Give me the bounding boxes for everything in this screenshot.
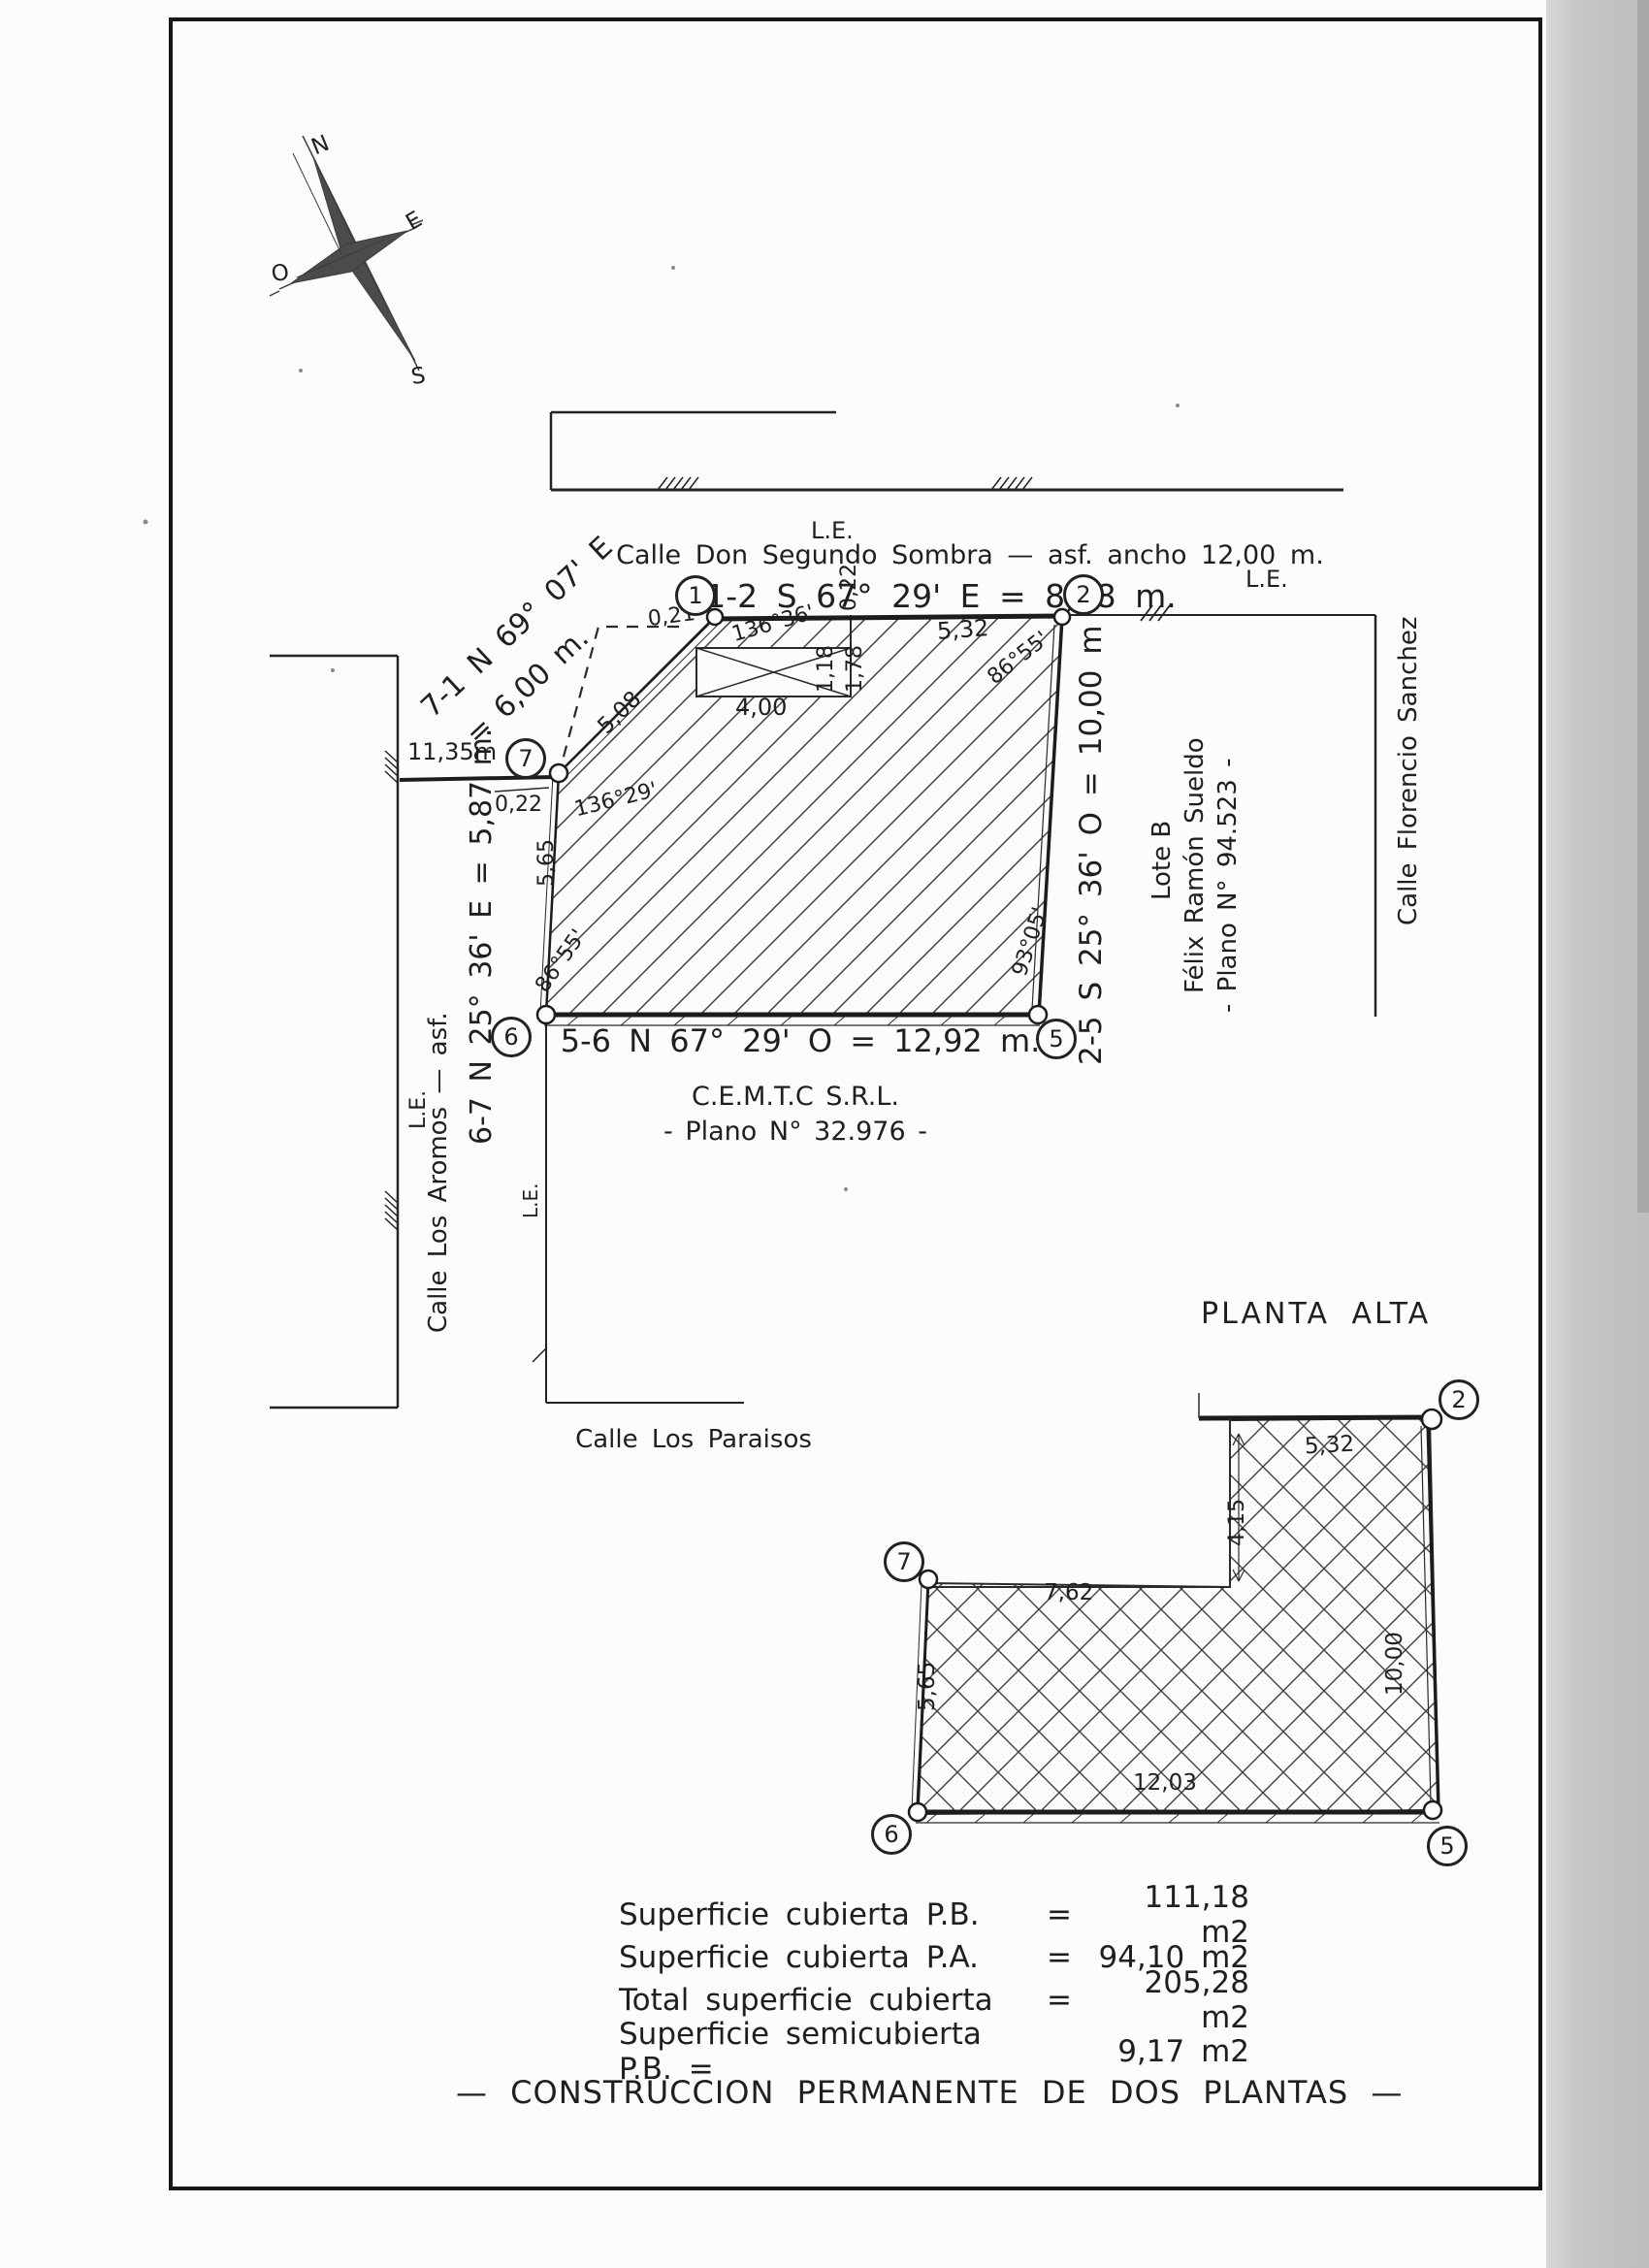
dim-0-22-top: 0,22 (838, 564, 861, 611)
area-eq: = (1028, 1940, 1090, 1975)
vertex-2-pb: 2 (1063, 574, 1104, 615)
left-street-name: Calle Los Aromos — asf. (425, 1012, 453, 1333)
area-row-semicubierta: Superficie semicubierta P.B. = 9,17 m2 (619, 2030, 1249, 2073)
vertex-5-pb-num: 5 (1049, 1025, 1063, 1053)
top-street-lines (551, 412, 1343, 490)
dim-5-32-pb: 5,32 (936, 615, 989, 644)
area-eq: = (1028, 1897, 1090, 1932)
vertex-7-pb-num: 7 (518, 745, 533, 772)
scanned-survey-plan: N E O S L.E. Calle Don Segundo Sombra — … (0, 0, 1649, 2268)
dim-10-00: 10,00 (1383, 1632, 1407, 1696)
dim-1-18: 1,18 (815, 645, 838, 693)
neighbor-owner: Félix Ramón Sueldo (1181, 737, 1210, 993)
vertex-6-pa-num: 6 (884, 1821, 898, 1848)
dim-7-62: 7,62 (1044, 1581, 1093, 1605)
neighbor-bottom-name: C.E.M.T.C S.R.L. (601, 1083, 989, 1112)
vertex-5-pa: 5 (1427, 1826, 1468, 1866)
planta-alta-title: PLANTA ALTA (1201, 1298, 1431, 1330)
area-value: 205,28 m2 (1090, 1965, 1249, 2035)
bearing-6-7: 6-7 N 25° 36' E = 5,87 m. (466, 729, 498, 1145)
vertex-6-pa: 6 (871, 1814, 912, 1855)
dim-0-22-left: 0,22 (495, 794, 542, 817)
right-street-le-label: L.E. (1245, 567, 1288, 592)
top-street-name: Calle Don Segundo Sombra — asf. ancho 12… (582, 541, 1358, 570)
dim-5-65-pb: 5,65 (535, 839, 559, 887)
vertex-2-pa: 2 (1439, 1379, 1479, 1420)
lot-le-label: L.E. (520, 1183, 541, 1219)
vertex-2-pb-num: 2 (1076, 581, 1090, 608)
dim-4-15: 4,15 (1226, 1499, 1249, 1546)
area-label: Superficie cubierta P.B. (619, 1897, 1028, 1932)
left-street-lines (270, 656, 398, 1408)
vertex-5-pa-num: 5 (1439, 1832, 1454, 1860)
right-street-name: Calle Florencio Sanchez (1395, 617, 1423, 926)
neighbor-plano: - Plano N° 94.523 - (1214, 759, 1243, 1013)
vertex-6-pb-num: 6 (503, 1023, 518, 1051)
vertex-7-pb: 7 (505, 738, 546, 779)
vertex-1-pb: 1 (675, 575, 716, 616)
neighbor-bottom-plano: - Plano N° 32.976 - (601, 1118, 989, 1147)
planta-alta-footprint (909, 1393, 1441, 1823)
vertex-7-pa-num: 7 (896, 1548, 911, 1575)
dim-12-03: 12,03 (1133, 1771, 1197, 1796)
area-label: Total superficie cubierta (619, 1983, 1028, 2018)
dim-1-78: 1,78 (844, 645, 867, 693)
vertex-5-pb: 5 (1036, 1019, 1077, 1059)
dim-5-32-pa: 5,32 (1304, 1433, 1354, 1460)
compass-rose-icon (270, 136, 423, 371)
area-value: 9,17 m2 (1090, 2034, 1249, 2069)
construction-type-note: — CONSTRUCCION PERMANENTE DE DOS PLANTAS… (456, 2076, 1329, 2110)
bottom-street-name: Calle Los Paraisos (548, 1426, 839, 1454)
dim-5-65-pa: 5,65 (916, 1662, 940, 1711)
dim-4-00: 4,00 (735, 695, 787, 720)
vertex-7-pa: 7 (884, 1541, 924, 1582)
vertex-2-pa-num: 2 (1451, 1386, 1466, 1413)
planta-baja-parcel (400, 609, 1070, 1025)
vertex-6-pb: 6 (491, 1017, 532, 1057)
area-row-pb: Superficie cubierta P.B. = 111,18 m2 (619, 1894, 1249, 1936)
vertex-1-pb-num: 1 (688, 582, 702, 609)
south-lot-boundary-lines (533, 1023, 744, 1403)
area-label: Superficie cubierta P.A. (619, 1940, 1028, 1975)
bearing-2-5: 2-5 S 25° 36' O = 10,00 m (1075, 625, 1108, 1065)
area-row-total: Total superficie cubierta = 205,28 m2 (619, 1979, 1249, 2022)
area-eq: = (1028, 1983, 1090, 2018)
bearing-5-6: 5-6 N 67° 29' O = 12,92 m. (543, 1024, 1057, 1058)
neighbor-lote-b: Lote B (1148, 821, 1177, 900)
surface-areas-table: Superficie cubierta P.B. = 111,18 m2 Sup… (619, 1894, 1249, 2073)
